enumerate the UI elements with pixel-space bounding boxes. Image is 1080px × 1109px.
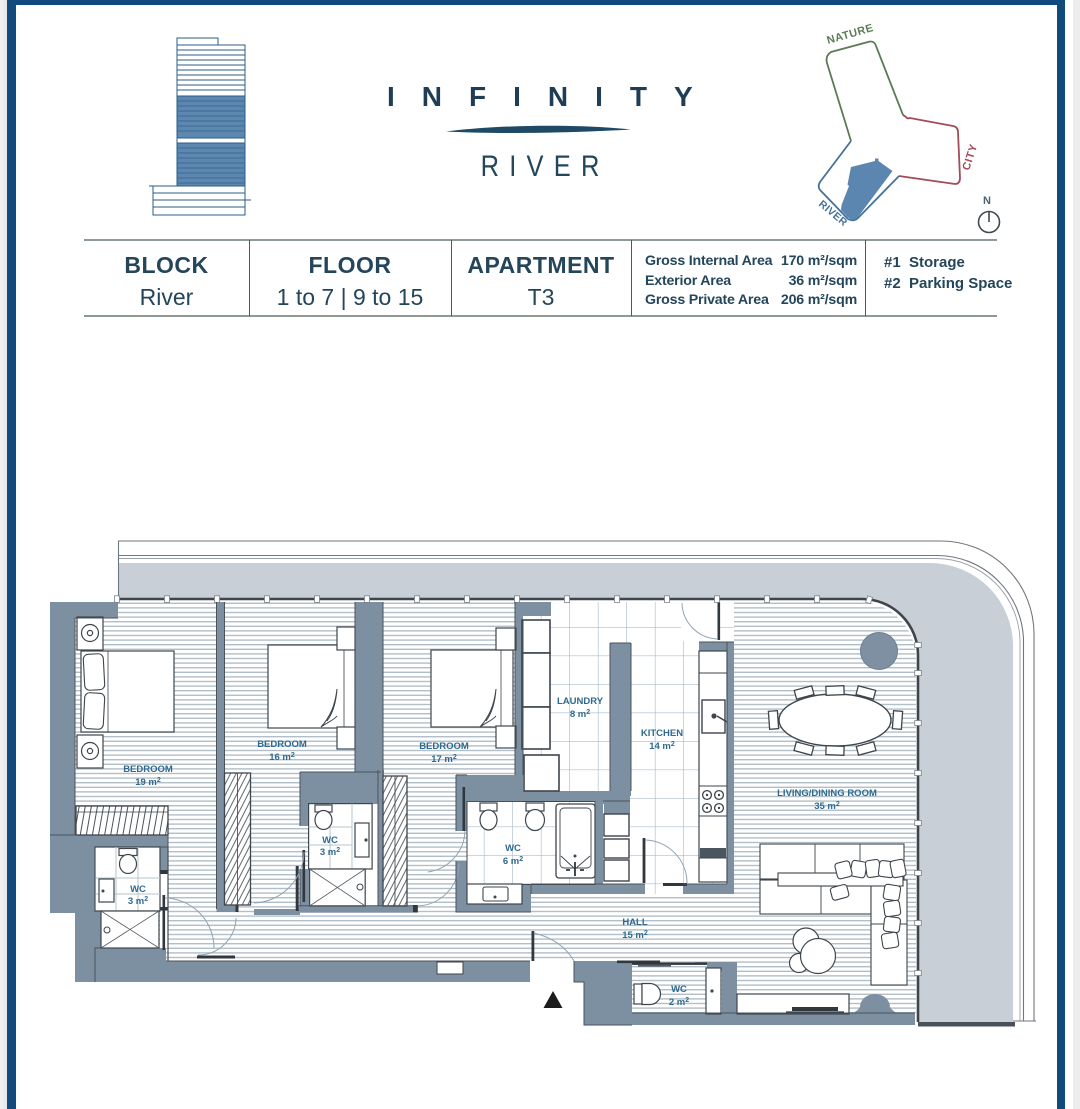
svg-text:BEDROOM: BEDROOM (257, 739, 307, 750)
svg-text:WC: WC (322, 835, 338, 846)
svg-text:WC: WC (671, 984, 687, 995)
svg-text:KITCHEN: KITCHEN (641, 728, 683, 739)
svg-text:WC: WC (505, 843, 521, 854)
svg-text:LIVING/DINING ROOM: LIVING/DINING ROOM (777, 788, 877, 799)
svg-text:LAUNDRY: LAUNDRY (557, 696, 604, 707)
svg-text:HALL: HALL (622, 917, 648, 928)
svg-text:WC: WC (130, 884, 146, 895)
svg-text:BEDROOM: BEDROOM (123, 764, 173, 775)
svg-text:BEDROOM: BEDROOM (419, 741, 469, 752)
